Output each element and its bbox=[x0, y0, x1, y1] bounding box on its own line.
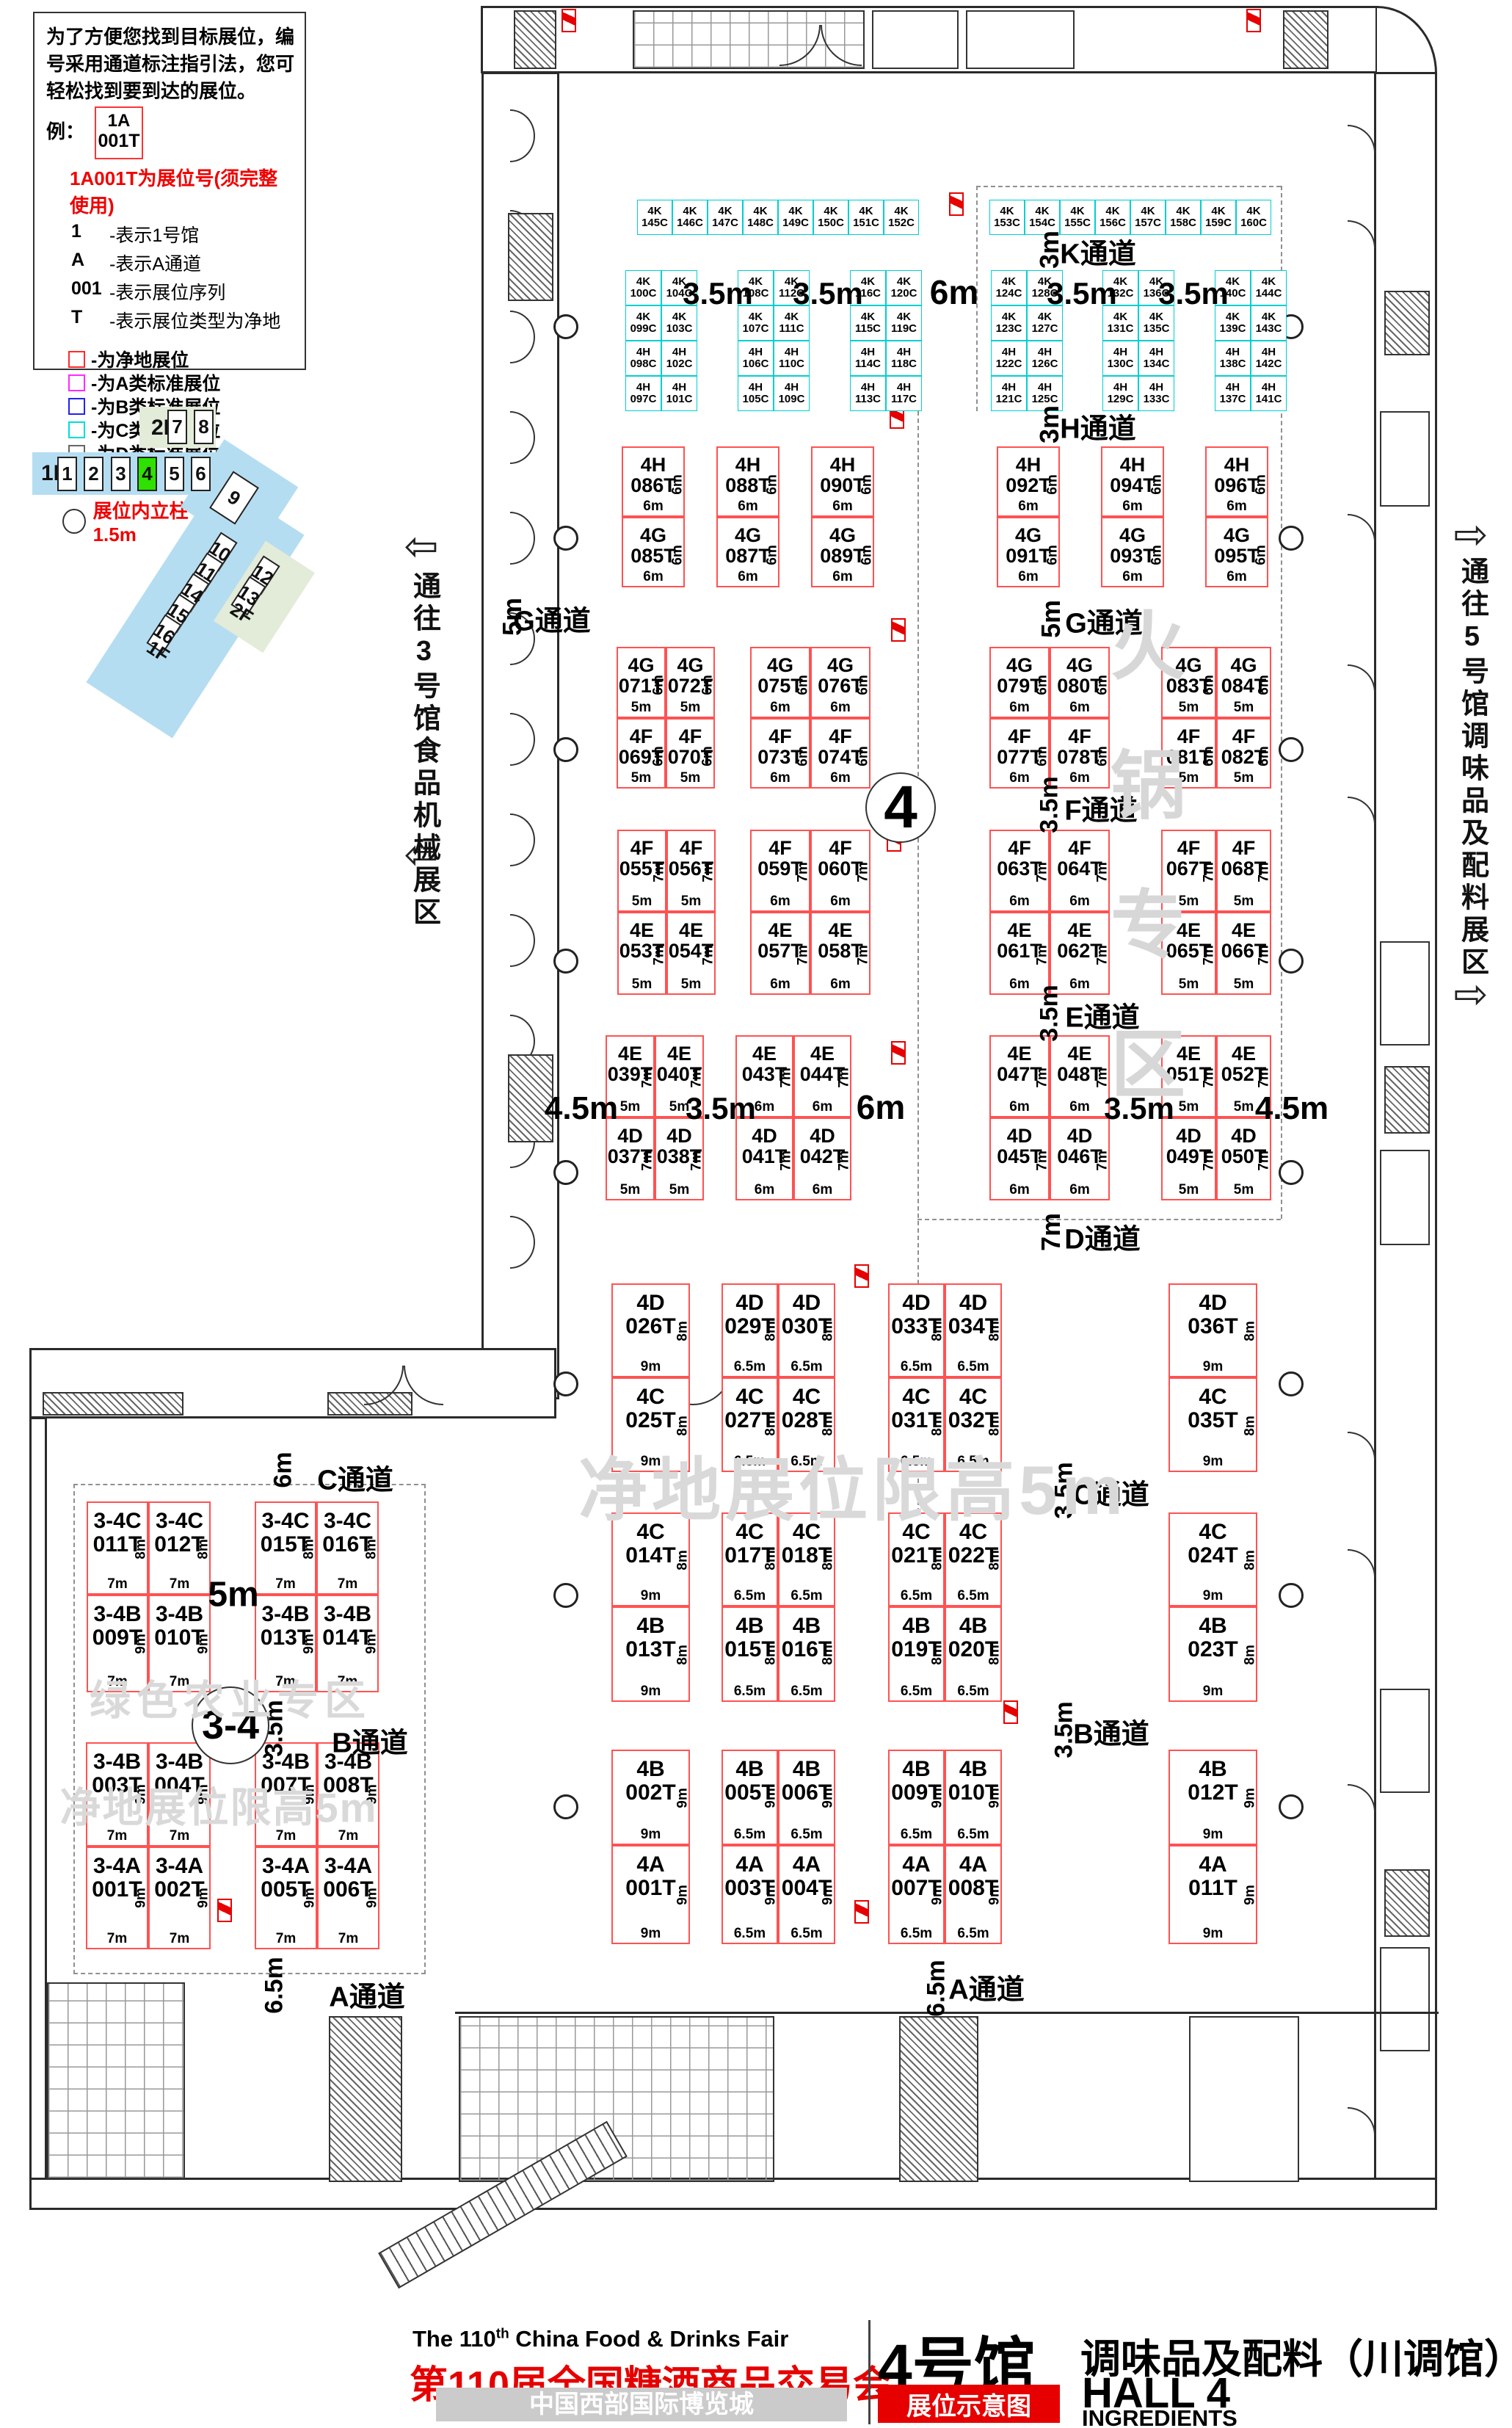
wall bbox=[1380, 1689, 1430, 1793]
booth-depth-dim: 9m bbox=[929, 1788, 945, 1808]
booth-depth-dim: 6m bbox=[1044, 545, 1061, 565]
booth-4e-047t[interactable]: 4E047T7m6m bbox=[989, 1035, 1050, 1117]
booth-4g-072t[interactable]: 4G072T6m5m bbox=[666, 647, 715, 718]
booth-depth-dim: 9m bbox=[301, 1634, 317, 1653]
booth-width-dim: 5m bbox=[1218, 700, 1270, 716]
booth-label: 4K111C bbox=[779, 311, 804, 335]
booth-4k-148c[interactable]: 4K148C bbox=[743, 200, 778, 235]
booth-width-dim: 7m bbox=[150, 1931, 209, 1947]
booth-depth-dim: 6m bbox=[1044, 474, 1061, 494]
minimap-hall-3[interactable]: 3 bbox=[111, 457, 131, 491]
booth-4b-020t[interactable]: 4B020T8m6.5m bbox=[945, 1606, 1002, 1702]
booth-label: 4K100C bbox=[630, 276, 657, 300]
minimap-hall-7[interactable]: 7 bbox=[167, 410, 187, 444]
booth-4h-090t[interactable]: 4H090T6m6m bbox=[811, 446, 874, 517]
booth-width-dim: 6m bbox=[623, 569, 683, 585]
booth-depth-dim: 7m bbox=[1256, 945, 1272, 965]
booth-4e-053t[interactable]: 4E053T7m5m bbox=[617, 912, 666, 995]
booth-4e-058t[interactable]: 4E058T7m6m bbox=[810, 912, 871, 995]
booth-label: 4D036T bbox=[1188, 1291, 1237, 1338]
booth-label: 4K099C bbox=[630, 311, 657, 335]
booth-4g-084t[interactable]: 4G084T6m5m bbox=[1216, 647, 1271, 718]
booth-4k-144c[interactable]: 4K144C bbox=[1251, 270, 1287, 305]
booth-4d-042t[interactable]: 4D042T7m6m bbox=[793, 1117, 851, 1200]
booth-3-4a-005t[interactable]: 3-4A005T9m7m bbox=[255, 1847, 317, 1949]
booth-4a-008t[interactable]: 4A008T9m6.5m bbox=[945, 1845, 1002, 1944]
booth-depth-dim: 9m bbox=[1242, 1885, 1258, 1905]
booth-width-dim: 6m bbox=[752, 894, 809, 910]
booth-4h-137c[interactable]: 4H137C bbox=[1215, 376, 1251, 411]
booth-label: 4K157C bbox=[1135, 206, 1161, 229]
booth-4c-024t[interactable]: 4C024T8m9m bbox=[1168, 1512, 1257, 1606]
booth-4h-133c[interactable]: 4H133C bbox=[1138, 376, 1174, 411]
booth-4k-145c[interactable]: 4K145C bbox=[637, 200, 672, 235]
booth-4d-037t[interactable]: 4D037T7m5m bbox=[606, 1117, 655, 1200]
booth-label: 4K139C bbox=[1220, 311, 1246, 335]
booth-label: 4A011T bbox=[1188, 1853, 1237, 1899]
booth-3-4a-001t[interactable]: 3-4A001T9m7m bbox=[86, 1847, 148, 1949]
booth-4h-102c[interactable]: 4H102C bbox=[661, 341, 697, 376]
booth-width-dim: 6.5m bbox=[723, 1926, 777, 1942]
booth-4k-159c[interactable]: 4K159C bbox=[1201, 200, 1236, 235]
booth-4h-113c[interactable]: 4H113C bbox=[850, 376, 886, 411]
booth-4h-114c[interactable]: 4H114C bbox=[850, 341, 886, 376]
booth-label: 4K155C bbox=[1064, 206, 1091, 229]
booth-width-dim: 6.5m bbox=[946, 1827, 1000, 1843]
booth-label: 4H133C bbox=[1144, 382, 1170, 405]
booth-4b-012t[interactable]: 4B012T9m9m bbox=[1168, 1750, 1257, 1845]
booth-4f-073t[interactable]: 4F073T6m6m bbox=[750, 718, 810, 789]
booth-3-4a-002t[interactable]: 3-4A002T9m7m bbox=[148, 1847, 211, 1949]
booth-depth-dim: 9m bbox=[363, 1634, 379, 1653]
booth-width-dim: 9m bbox=[613, 1359, 688, 1375]
dim-h-label: 3m bbox=[1034, 405, 1065, 443]
booth-width-dim: 9m bbox=[1170, 1684, 1256, 1700]
booth-depth-dim: 6m bbox=[855, 675, 871, 695]
booth-4k-143c[interactable]: 4K143C bbox=[1251, 305, 1287, 341]
pillar-icon bbox=[1279, 1371, 1304, 1396]
aisle-h-label: H通道 bbox=[1060, 406, 1135, 446]
stairs-hatch bbox=[1384, 1869, 1430, 1937]
booth-4f-069t[interactable]: 4F069T6m5m bbox=[617, 718, 666, 789]
booth-4e-066t[interactable]: 4E066T7m5m bbox=[1216, 912, 1271, 995]
booth-4h-118c[interactable]: 4H118C bbox=[886, 341, 922, 376]
booth-4e-057t[interactable]: 4E057T7m6m bbox=[750, 912, 810, 995]
booth-4h-142c[interactable]: 4H142C bbox=[1251, 341, 1287, 376]
booth-4k-100c[interactable]: 4K100C bbox=[625, 270, 661, 305]
booth-4d-041t[interactable]: 4D041T7m6m bbox=[735, 1117, 793, 1200]
booth-depth-dim: 6m bbox=[1149, 474, 1165, 494]
booth-width-dim: 6m bbox=[813, 499, 873, 515]
booth-4a-007t[interactable]: 4A007T9m6.5m bbox=[888, 1845, 945, 1944]
booth-3-4a-006t[interactable]: 3-4A006T9m7m bbox=[317, 1847, 379, 1949]
booth-4k-147c[interactable]: 4K147C bbox=[708, 200, 743, 235]
gap-7-label: 3.5m bbox=[686, 1091, 756, 1126]
booth-width-dim: 6m bbox=[1207, 569, 1267, 585]
booth-4h-097c[interactable]: 4H097C bbox=[625, 376, 661, 411]
fire-well-icon bbox=[1003, 1700, 1018, 1724]
booth-4k-123c[interactable]: 4K123C bbox=[991, 305, 1027, 341]
booth-width-dim: 6.5m bbox=[779, 1588, 834, 1604]
legend-panel: 为了方便您找到目标展位，编号采用通道标注指引法，您可轻松找到要到达的展位。 例：… bbox=[33, 12, 306, 370]
booth-depth-dim: 7m bbox=[795, 863, 811, 883]
minimap-hall-8[interactable]: 8 bbox=[194, 410, 214, 444]
booth-label: 4H117C bbox=[891, 382, 917, 405]
booth-depth-dim: 9m bbox=[986, 1788, 1003, 1808]
booth-4h-098c[interactable]: 4H098C bbox=[625, 341, 661, 376]
booth-4d-029t[interactable]: 4D029T8m6.5m bbox=[722, 1283, 778, 1377]
booth-label: 4H098C bbox=[630, 347, 657, 370]
booth-depth-dim: 7m bbox=[1201, 945, 1217, 965]
fire-well-icon bbox=[891, 618, 906, 642]
stairs-hatch bbox=[508, 213, 553, 301]
booth-4k-120c[interactable]: 4K120C bbox=[886, 270, 922, 305]
booth-4d-036t[interactable]: 4D036T8m9m bbox=[1168, 1283, 1257, 1377]
booth-label: 4H101C bbox=[666, 382, 693, 405]
booth-4f-074t[interactable]: 4F074T6m6m bbox=[810, 718, 871, 789]
booth-width-dim: 6m bbox=[812, 894, 869, 910]
booth-label: 4H122C bbox=[996, 347, 1022, 370]
booth-label: 4K150C bbox=[818, 206, 844, 229]
booth-4h-126c[interactable]: 4H126C bbox=[1027, 341, 1063, 376]
booth-4c-035t[interactable]: 4C035T8m9m bbox=[1168, 1377, 1257, 1472]
watermark-height-main: 净地展位限高5m bbox=[578, 1435, 1127, 1534]
booth-depth-dim: 9m bbox=[763, 1885, 779, 1905]
booth-3-4c-011t[interactable]: 3-4C011T8m7m bbox=[87, 1501, 148, 1595]
booth-4h-130c[interactable]: 4H130C bbox=[1102, 341, 1138, 376]
minimap-hall-4[interactable]: 4 bbox=[137, 457, 157, 491]
booth-label: 4H096T bbox=[1214, 454, 1260, 496]
door-arc-icon bbox=[1348, 797, 1375, 825]
booth-4k-157c[interactable]: 4K157C bbox=[1130, 200, 1166, 235]
booth-depth-dim: 6m bbox=[1034, 675, 1050, 695]
booth-4g-093t[interactable]: 4G093T6m6m bbox=[1101, 517, 1164, 587]
booth-4b-015t[interactable]: 4B015T8m6.5m bbox=[722, 1606, 778, 1702]
booth-width-dim: 6m bbox=[718, 569, 778, 585]
booth-4g-089t[interactable]: 4G089T6m6m bbox=[811, 517, 874, 587]
booth-4k-149c[interactable]: 4K149C bbox=[778, 200, 813, 235]
booth-label: 4K127C bbox=[1032, 311, 1058, 335]
booth-4g-085t[interactable]: 4G085T6m6m bbox=[622, 517, 685, 587]
booth-4f-056t[interactable]: 4F056T7m5m bbox=[666, 830, 716, 912]
watermark-height-wing: 净地展位限高5m bbox=[60, 1775, 378, 1835]
booth-depth-dim: 8m bbox=[929, 1321, 945, 1341]
stairs-hatch bbox=[1384, 1066, 1430, 1134]
aisle-a-right-label: A通道 bbox=[948, 1967, 1024, 2007]
booth-label: 4H129C bbox=[1108, 382, 1134, 405]
pillar-icon bbox=[553, 1794, 578, 1819]
booth-4k-119c[interactable]: 4K119C bbox=[886, 305, 922, 341]
booth-depth-dim: 6m bbox=[859, 545, 875, 565]
booth-4k-153c[interactable]: 4K153C bbox=[989, 200, 1025, 235]
watermark-green: 绿色农业专区 bbox=[90, 1668, 371, 1728]
fire-well-icon bbox=[1246, 9, 1261, 32]
booth-label: 4B023T bbox=[1188, 1615, 1237, 1661]
booth-label: 4C024T bbox=[1188, 1521, 1237, 1567]
wall bbox=[1189, 2016, 1299, 2182]
booth-4h-134c[interactable]: 4H134C bbox=[1138, 341, 1174, 376]
booth-4a-004t[interactable]: 4A004T9m6.5m bbox=[778, 1845, 835, 1944]
booth-label: 4H090T bbox=[820, 454, 865, 496]
pillar-icon bbox=[1279, 737, 1304, 762]
booth-4h-088t[interactable]: 4H088T6m6m bbox=[716, 446, 779, 517]
booth-label: 4G095T bbox=[1214, 525, 1260, 567]
booth-4b-019t[interactable]: 4B019T8m6.5m bbox=[888, 1606, 945, 1702]
booth-label: 4K143C bbox=[1256, 311, 1282, 335]
booth-4h-110c[interactable]: 4H110C bbox=[774, 341, 810, 376]
booth-4d-034t[interactable]: 4D034T8m6.5m bbox=[945, 1283, 1002, 1377]
booth-width-dim: 6.5m bbox=[890, 1359, 943, 1375]
dim-k-label: 3m bbox=[1034, 231, 1065, 269]
booth-4k-124c[interactable]: 4K124C bbox=[991, 270, 1027, 305]
booth-3-4c-012t[interactable]: 3-4C012T8m7m bbox=[148, 1501, 211, 1595]
booth-depth-dim: 8m bbox=[195, 1539, 211, 1559]
booth-4b-005t[interactable]: 4B005T9m6.5m bbox=[722, 1750, 778, 1845]
booth-depth-dim: 8m bbox=[986, 1645, 1003, 1664]
booth-4g-091t[interactable]: 4G091T6m6m bbox=[997, 517, 1060, 587]
booth-4h-096t[interactable]: 4H096T6m6m bbox=[1205, 446, 1268, 517]
booth-depth-dim: 7m bbox=[1201, 1150, 1217, 1170]
booth-4h-138c[interactable]: 4H138C bbox=[1215, 341, 1251, 376]
booth-4f-059t[interactable]: 4F059T7m6m bbox=[750, 830, 810, 912]
booth-depth-dim: 6m bbox=[1149, 545, 1165, 565]
booth-depth-dim: 9m bbox=[133, 1634, 149, 1653]
booth-4h-101c[interactable]: 4H101C bbox=[661, 376, 697, 411]
booth-3-4c-015t[interactable]: 3-4C015T8m7m bbox=[255, 1501, 316, 1595]
minimap-hall-2[interactable]: 2 bbox=[84, 457, 103, 491]
stairs-hatch bbox=[1384, 291, 1430, 355]
stairs-hatch bbox=[43, 1392, 183, 1416]
booth-width-dim: 6m bbox=[998, 499, 1058, 515]
booth-4f-082t[interactable]: 4F082T6m5m bbox=[1216, 718, 1271, 789]
booth-4k-152c[interactable]: 4K152C bbox=[884, 200, 919, 235]
booth-4g-087t[interactable]: 4G087T6m6m bbox=[716, 517, 779, 587]
booth-depth-dim: 7m bbox=[836, 1150, 852, 1170]
booth-label: 4K147C bbox=[712, 206, 738, 229]
fire-well-icon bbox=[217, 1899, 232, 1922]
booth-4d-033t[interactable]: 4D033T8m6.5m bbox=[888, 1283, 945, 1377]
booth-4k-158c[interactable]: 4K158C bbox=[1166, 200, 1201, 235]
booth-depth-dim: 7m bbox=[855, 945, 871, 965]
booth-width-dim: 6.5m bbox=[723, 1588, 777, 1604]
booth-4k-151c[interactable]: 4K151C bbox=[848, 200, 884, 235]
booth-label: 4H109C bbox=[779, 382, 805, 405]
booth-width-dim: 7m bbox=[150, 1576, 209, 1592]
minimap-hall-5[interactable]: 5 bbox=[164, 457, 184, 491]
aisle-c-wing-label: C通道 bbox=[317, 1457, 393, 1498]
booth-4h-109c[interactable]: 4H109C bbox=[774, 376, 810, 411]
door-arc-icon bbox=[1348, 220, 1375, 248]
booth-4b-006t[interactable]: 4B006T9m6.5m bbox=[778, 1750, 835, 1845]
booth-label: 4B012T bbox=[1188, 1758, 1237, 1804]
booth-4k-146c[interactable]: 4K146C bbox=[672, 200, 708, 235]
booth-depth-dim: 8m bbox=[929, 1645, 945, 1664]
booth-depth-dim: 8m bbox=[986, 1321, 1003, 1341]
booth-4f-060t[interactable]: 4F060T7m6m bbox=[810, 830, 871, 912]
arrow-right-top-icon: ⇨ bbox=[1454, 510, 1489, 559]
booth-depth-dim: 7m bbox=[1034, 945, 1050, 965]
booth-depth-dim: 8m bbox=[820, 1550, 836, 1570]
booth-4h-106c[interactable]: 4H106C bbox=[738, 341, 774, 376]
booth-depth-dim: 6m bbox=[1253, 545, 1269, 565]
booth-4e-054t[interactable]: 4E054T7m5m bbox=[666, 912, 716, 995]
booth-depth-dim: 7m bbox=[651, 945, 667, 965]
booth-label: 4G093T bbox=[1110, 525, 1155, 567]
booth-4a-001t[interactable]: 4A001T9m9m bbox=[611, 1845, 690, 1944]
booth-width-dim: 6m bbox=[737, 1182, 792, 1198]
booth-depth-dim: 7m bbox=[639, 1068, 655, 1088]
booth-4e-061t[interactable]: 4E061T7m6m bbox=[989, 912, 1050, 995]
booth-label: 4H110C bbox=[779, 347, 804, 370]
booth-4b-016t[interactable]: 4B016T8m6.5m bbox=[778, 1606, 835, 1702]
booth-depth-dim: 6m bbox=[795, 746, 811, 766]
booth-4k-155c[interactable]: 4K155C bbox=[1060, 200, 1095, 235]
booth-depth-dim: 7m bbox=[778, 1150, 794, 1170]
booth-4f-070t[interactable]: 4F070T6m5m bbox=[666, 718, 715, 789]
pillar-icon bbox=[553, 949, 578, 974]
fire-well-icon bbox=[854, 1900, 869, 1924]
booth-depth-dim: 7m bbox=[1256, 1068, 1272, 1088]
booth-4h-092t[interactable]: 4H092T6m6m bbox=[997, 446, 1060, 517]
booth-4k-156c[interactable]: 4K156C bbox=[1095, 200, 1130, 235]
nav-to-hall5-label: 通往5号馆调味品及配料展区 bbox=[1453, 557, 1493, 979]
booth-4b-009t[interactable]: 4B009T9m6.5m bbox=[888, 1750, 945, 1845]
booth-depth-dim: 7m bbox=[1256, 1150, 1272, 1170]
booth-depth-dim: 7m bbox=[1034, 1068, 1050, 1088]
booth-label: 4C035T bbox=[1188, 1385, 1237, 1432]
booth-4h-094t[interactable]: 4H094T6m6m bbox=[1101, 446, 1164, 517]
pillar-icon bbox=[1279, 526, 1304, 551]
booth-depth-dim: 7m bbox=[700, 863, 716, 883]
booth-4k-150c[interactable]: 4K150C bbox=[813, 200, 848, 235]
booth-4e-044t[interactable]: 4E044T7m6m bbox=[793, 1035, 851, 1117]
gap-3-label: 6m bbox=[930, 272, 978, 312]
booth-label: 4H086T bbox=[630, 454, 676, 496]
booth-depth-dim: 9m bbox=[1242, 1788, 1258, 1808]
booth-4a-011t[interactable]: 4A011T9m9m bbox=[1168, 1845, 1257, 1944]
booth-depth-dim: 9m bbox=[195, 1634, 211, 1653]
booth-label: 4D026T bbox=[625, 1291, 675, 1338]
stairs-hatch bbox=[329, 2016, 402, 2182]
booth-4g-071t[interactable]: 4G071T6m5m bbox=[617, 647, 666, 718]
booth-width-dim: 5m bbox=[619, 894, 665, 910]
booth-width-dim: 9m bbox=[613, 1926, 688, 1942]
booth-width-dim: 5m bbox=[1163, 1182, 1215, 1198]
watermark-hotpot: 火锅专区 bbox=[1088, 606, 1196, 1164]
legend-code-key: 1 bbox=[71, 221, 109, 247]
booth-4h-086t[interactable]: 4H086T6m6m bbox=[622, 446, 685, 517]
booth-4f-068t[interactable]: 4F068T7m5m bbox=[1216, 830, 1271, 912]
booth-width-dim: 6m bbox=[991, 894, 1048, 910]
door-arc-icon bbox=[1348, 514, 1375, 542]
booth-4g-076t[interactable]: 4G076T6m6m bbox=[810, 647, 871, 718]
booth-width-dim: 6m bbox=[795, 1182, 850, 1198]
booth-width-dim: 5m bbox=[1218, 976, 1270, 993]
booth-4g-075t[interactable]: 4G075T6m6m bbox=[750, 647, 810, 718]
booth-4b-010t[interactable]: 4B010T9m6.5m bbox=[945, 1750, 1002, 1845]
booth-4d-026t[interactable]: 4D026T8m9m bbox=[611, 1283, 690, 1377]
booth-depth-dim: 8m bbox=[929, 1550, 945, 1570]
booth-4f-063t[interactable]: 4F063T7m6m bbox=[989, 830, 1050, 912]
minimap-hall-6[interactable]: 6 bbox=[191, 457, 211, 491]
booth-4b-002t[interactable]: 4B002T9m9m bbox=[611, 1750, 690, 1845]
booth-depth-dim: 6m bbox=[699, 675, 716, 695]
booth-4k-154c[interactable]: 4K154C bbox=[1025, 200, 1060, 235]
booth-4d-038t[interactable]: 4D038T7m5m bbox=[655, 1117, 704, 1200]
booth-depth-dim: 7m bbox=[639, 1150, 655, 1170]
minimap-hall-1[interactable]: 1 bbox=[57, 457, 77, 491]
booth-width-dim: 6.5m bbox=[723, 1684, 777, 1700]
dim-b-right-label: 3.5m bbox=[1050, 1701, 1079, 1758]
booth-depth-dim: 7m bbox=[688, 1068, 705, 1088]
booth-width-dim: 6m bbox=[752, 700, 809, 716]
gap-1-label: 3.5m bbox=[683, 276, 753, 311]
booth-3-4c-016t[interactable]: 3-4C016T8m7m bbox=[316, 1501, 379, 1595]
booth-4g-095t[interactable]: 4G095T6m6m bbox=[1205, 517, 1268, 587]
booth-4a-003t[interactable]: 4A003T9m6.5m bbox=[722, 1845, 778, 1944]
booth-4h-121c[interactable]: 4H121C bbox=[991, 376, 1027, 411]
booth-4d-030t[interactable]: 4D030T8m6.5m bbox=[778, 1283, 835, 1377]
fire-well-icon bbox=[949, 192, 964, 216]
booth-4k-160c[interactable]: 4K160C bbox=[1236, 200, 1271, 235]
booth-width-dim: 5m bbox=[1218, 770, 1270, 786]
booth-4g-079t[interactable]: 4G079T6m6m bbox=[989, 647, 1050, 718]
booth-depth-dim: 8m bbox=[986, 1416, 1003, 1435]
booth-label: 4K148C bbox=[747, 206, 774, 229]
booth-4k-099c[interactable]: 4K099C bbox=[625, 305, 661, 341]
pillar-icon bbox=[1279, 1794, 1304, 1819]
booth-label: 4H113C bbox=[855, 382, 881, 405]
booth-depth-dim: 6m bbox=[764, 474, 780, 494]
fire-well-icon bbox=[891, 1041, 906, 1065]
booth-label: 4H092T bbox=[1006, 454, 1051, 496]
booth-label: 4K151C bbox=[853, 206, 879, 229]
booth-4d-045t[interactable]: 4D045T7m6m bbox=[989, 1117, 1050, 1200]
booth-width-dim: 6m bbox=[795, 1099, 850, 1115]
booth-4b-023t[interactable]: 4B023T8m9m bbox=[1168, 1606, 1257, 1702]
booth-label: 4H126C bbox=[1032, 347, 1058, 370]
booth-4h-105c[interactable]: 4H105C bbox=[738, 376, 774, 411]
pillar-icon bbox=[553, 526, 578, 551]
booth-4d-050t[interactable]: 4D050T7m5m bbox=[1216, 1117, 1271, 1200]
booth-4h-122c[interactable]: 4H122C bbox=[991, 341, 1027, 376]
booth-4h-117c[interactable]: 4H117C bbox=[886, 376, 922, 411]
booth-type-swatch bbox=[68, 421, 85, 438]
booth-width-dim: 6.5m bbox=[779, 1827, 834, 1843]
booth-label: 4K158C bbox=[1170, 206, 1196, 229]
map-tag: 展位示意图 bbox=[878, 2385, 1060, 2423]
booth-depth-dim: 8m bbox=[763, 1416, 779, 1435]
booth-depth-dim: 6m bbox=[1034, 746, 1050, 766]
booth-4b-013t[interactable]: 4B013T8m9m bbox=[611, 1606, 690, 1702]
aisle-k-label: K通道 bbox=[1060, 231, 1135, 272]
booth-depth-dim: 7m bbox=[1034, 1150, 1050, 1170]
booth-label: 4A001T bbox=[625, 1853, 675, 1899]
aisle-d-label: D通道 bbox=[1064, 1217, 1140, 1257]
booth-label: 4H118C bbox=[891, 347, 917, 370]
booth-label: 4H125C bbox=[1032, 382, 1058, 405]
booth-depth-dim: 8m bbox=[675, 1645, 691, 1664]
booth-width-dim: 6m bbox=[752, 770, 809, 786]
booth-depth-dim: 7m bbox=[778, 1068, 794, 1088]
booth-label: 4K120C bbox=[891, 276, 917, 300]
pillar-icon bbox=[62, 509, 86, 534]
pillar-icon bbox=[1279, 1583, 1304, 1608]
booth-4h-141c[interactable]: 4H141C bbox=[1251, 376, 1287, 411]
stairs-hatch bbox=[514, 10, 556, 69]
booth-4f-055t[interactable]: 4F055T7m5m bbox=[617, 830, 666, 912]
booth-depth-dim: 8m bbox=[675, 1550, 691, 1570]
